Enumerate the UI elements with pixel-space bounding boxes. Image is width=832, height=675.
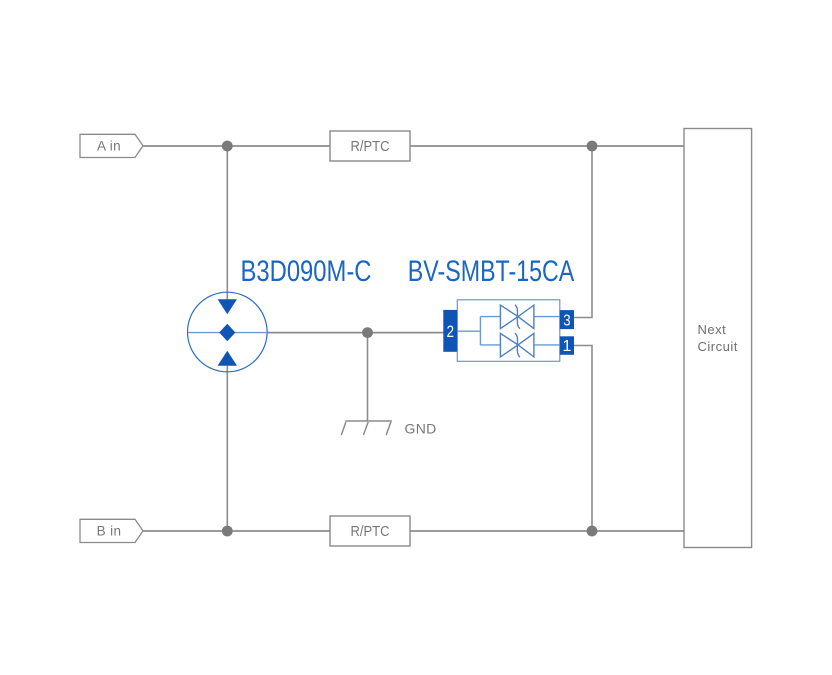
svg-text:Circuit: Circuit [698,339,738,354]
svg-text:B3D090M-C: B3D090M-C [241,255,372,288]
svg-text:3: 3 [563,312,570,329]
svg-text:R/PTC: R/PTC [351,139,390,155]
svg-text:A in: A in [97,139,121,154]
svg-text:1: 1 [562,338,571,355]
svg-text:Next: Next [698,322,727,337]
svg-text:BV-SMBT-15CA: BV-SMBT-15CA [408,255,575,288]
svg-text:2: 2 [447,323,455,341]
svg-text:GND: GND [405,421,437,437]
svg-text:R/PTC: R/PTC [351,524,390,540]
svg-text:B in: B in [97,524,122,539]
